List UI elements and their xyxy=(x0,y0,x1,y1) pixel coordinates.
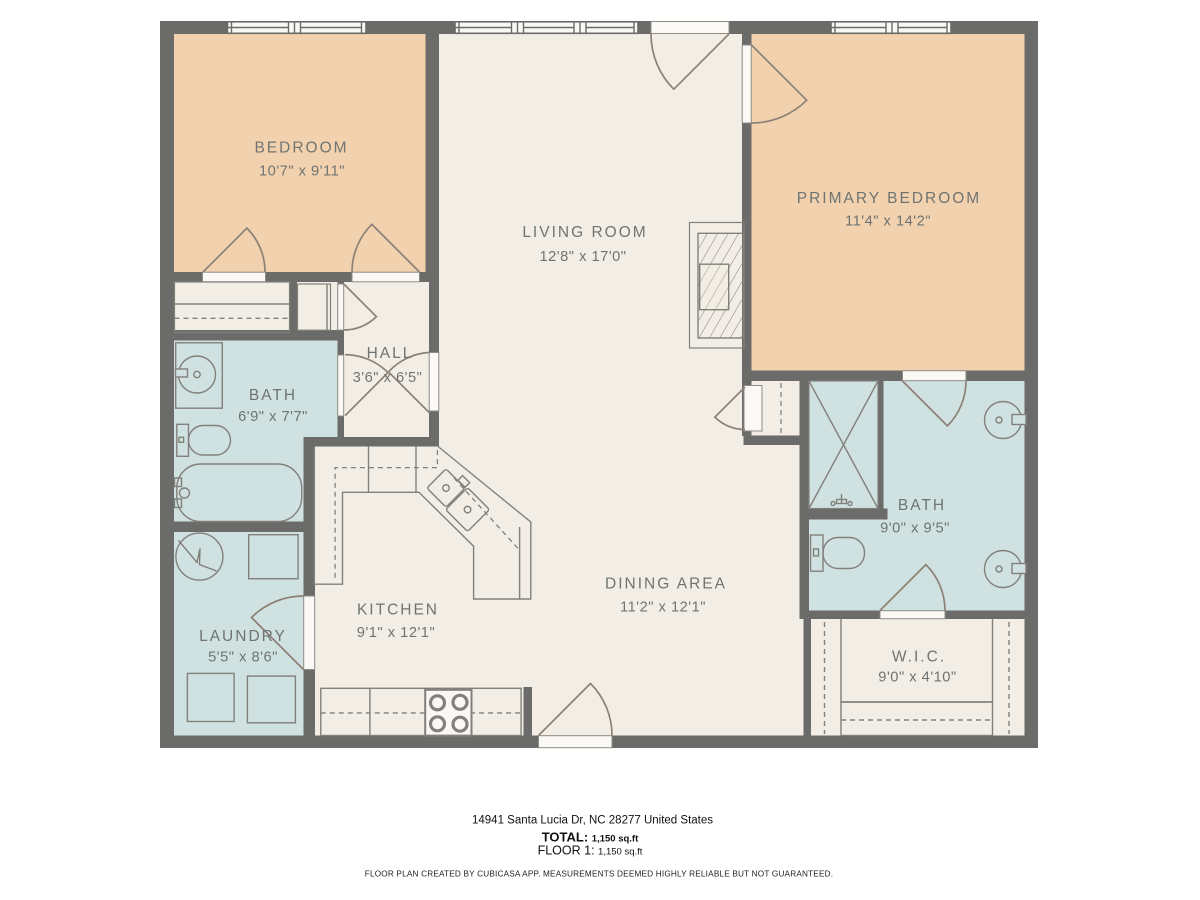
svg-text:9'1" x 12'1": 9'1" x 12'1" xyxy=(357,625,435,641)
svg-text:11'2" x 12'1": 11'2" x 12'1" xyxy=(620,600,706,616)
svg-text:12'8" x 17'0": 12'8" x 17'0" xyxy=(539,249,626,265)
svg-text:W.I.C.: W.I.C. xyxy=(892,649,946,666)
svg-text:BATH: BATH xyxy=(898,497,946,514)
svg-text:6'9" x 7'7": 6'9" x 7'7" xyxy=(238,409,308,425)
svg-text:3'6" x 6'5": 3'6" x 6'5" xyxy=(353,370,423,386)
svg-text:PRIMARY BEDROOM: PRIMARY BEDROOM xyxy=(797,190,981,207)
svg-text:DINING AREA: DINING AREA xyxy=(605,576,727,593)
svg-text:HALL: HALL xyxy=(367,345,414,362)
svg-text:11'4" x 14'2": 11'4" x 14'2" xyxy=(845,214,931,230)
svg-text:KITCHEN: KITCHEN xyxy=(357,602,439,619)
svg-text:9'0" x 9'5": 9'0" x 9'5" xyxy=(880,521,950,537)
svg-text:FLOOR 1: 1,150 sq.ft: FLOOR 1: 1,150 sq.ft xyxy=(538,844,643,858)
svg-text:FLOOR PLAN CREATED BY CUBICASA: FLOOR PLAN CREATED BY CUBICASA APP. MEAS… xyxy=(365,870,833,879)
svg-text:BATH: BATH xyxy=(249,387,297,404)
svg-text:14941 Santa Lucia Dr, NC 28277: 14941 Santa Lucia Dr, NC 28277 United St… xyxy=(472,815,713,827)
svg-text:LAUNDRY: LAUNDRY xyxy=(199,628,287,645)
svg-text:10'7" x 9'11": 10'7" x 9'11" xyxy=(259,164,345,180)
svg-text:5'5" x 8'6": 5'5" x 8'6" xyxy=(208,650,278,666)
svg-text:LIVING ROOM: LIVING ROOM xyxy=(522,224,647,241)
svg-text:BEDROOM: BEDROOM xyxy=(254,140,348,157)
svg-text:9'0" x 4'10": 9'0" x 4'10" xyxy=(878,670,956,686)
